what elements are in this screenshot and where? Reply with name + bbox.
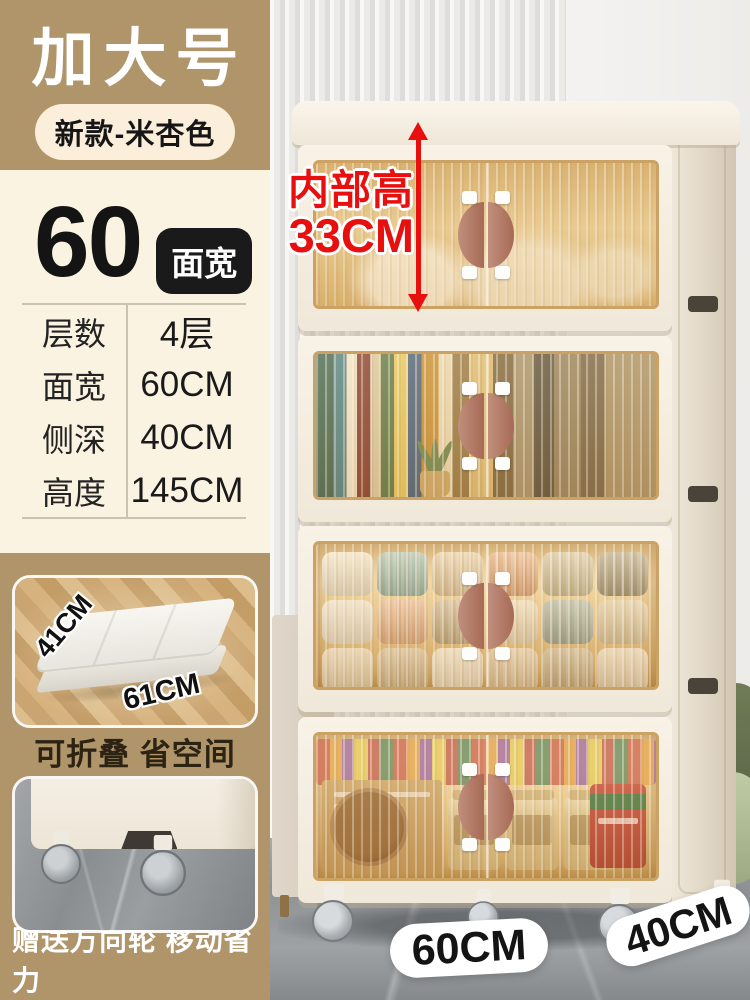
- spec-row: 高度 145CM: [22, 464, 246, 517]
- door-handle: [456, 572, 516, 660]
- info-column: 加大号 新款-米杏色 60 面宽 层数 4层 面宽 60CM 侧深 40CM: [0, 0, 270, 1000]
- spec-table: 层数 4层 面宽 60CM 侧深 40CM 高度 145CM: [22, 303, 246, 519]
- width-badge: 面宽: [156, 228, 252, 294]
- spec-label: 面宽: [22, 358, 128, 411]
- spec-panel: 60 面宽 层数 4层 面宽 60CM 侧深 40CM 高度 145C: [0, 170, 270, 553]
- spec-label: 高度: [22, 464, 128, 517]
- spec-value: 4层: [128, 306, 246, 357]
- wheels-caption: 赠送万向轮 移动省力: [12, 938, 258, 980]
- height-arrow-down-icon: [408, 294, 428, 312]
- caster-wheel: [41, 831, 81, 884]
- spec-label: 侧深: [22, 411, 128, 464]
- cabinet-side-panel: [668, 120, 736, 906]
- variant-pill: 新款-米杏色: [35, 104, 236, 160]
- cabinet-lid: [292, 101, 740, 145]
- door-handle: [456, 763, 516, 851]
- width-number-row: 60 面宽: [0, 170, 270, 294]
- width-floor-label: 60CM: [389, 917, 550, 979]
- spec-row: 侧深 40CM: [22, 411, 246, 464]
- door-handle: [456, 382, 516, 470]
- product-photo: 内部高 33CM 60CM 40CM: [270, 0, 750, 1000]
- tier-4-door: [313, 732, 659, 881]
- cabinet-tier-2: [298, 336, 672, 522]
- spec-value: 145CM: [128, 471, 246, 511]
- inner-height-value: 33CM: [270, 212, 414, 260]
- spec-value: 40CM: [128, 418, 246, 458]
- width-number: 60: [34, 196, 141, 288]
- tier-3-door: [313, 541, 659, 690]
- foldable-caption: 可折叠 省空间: [12, 730, 258, 772]
- caster-wheel: [312, 884, 356, 942]
- caster-wheel: [140, 835, 186, 896]
- inner-height-annotation: 内部高 33CM: [270, 170, 414, 260]
- cabinet-tier-4: [298, 717, 672, 903]
- foldable-photo: 41CM 61CM: [12, 575, 258, 728]
- door-handle: [456, 191, 516, 279]
- height-arrow-up-icon: [408, 122, 428, 140]
- wheels-photo: [12, 776, 258, 933]
- spec-label: 层数: [22, 305, 128, 358]
- promo-panel: 41CM 61CM 可折叠 省空间 赠送万向轮 移动省力: [0, 553, 270, 1000]
- product-card: 内部高 33CM 60CM 40CM 加大号 新款-米杏色 60 面宽 层数 4…: [0, 0, 750, 1000]
- header-badge-panel: 加大号 新款-米杏色: [0, 0, 270, 170]
- size-title: 加大号: [23, 8, 248, 99]
- inner-height-label: 内部高: [270, 170, 414, 212]
- spec-row: 层数 4层: [22, 305, 246, 358]
- spec-value: 60CM: [128, 365, 246, 405]
- height-arrow-line: [416, 138, 421, 296]
- cabinet-tier-3: [298, 526, 672, 712]
- spec-row: 面宽 60CM: [22, 358, 246, 411]
- tier-2-door: [313, 351, 659, 500]
